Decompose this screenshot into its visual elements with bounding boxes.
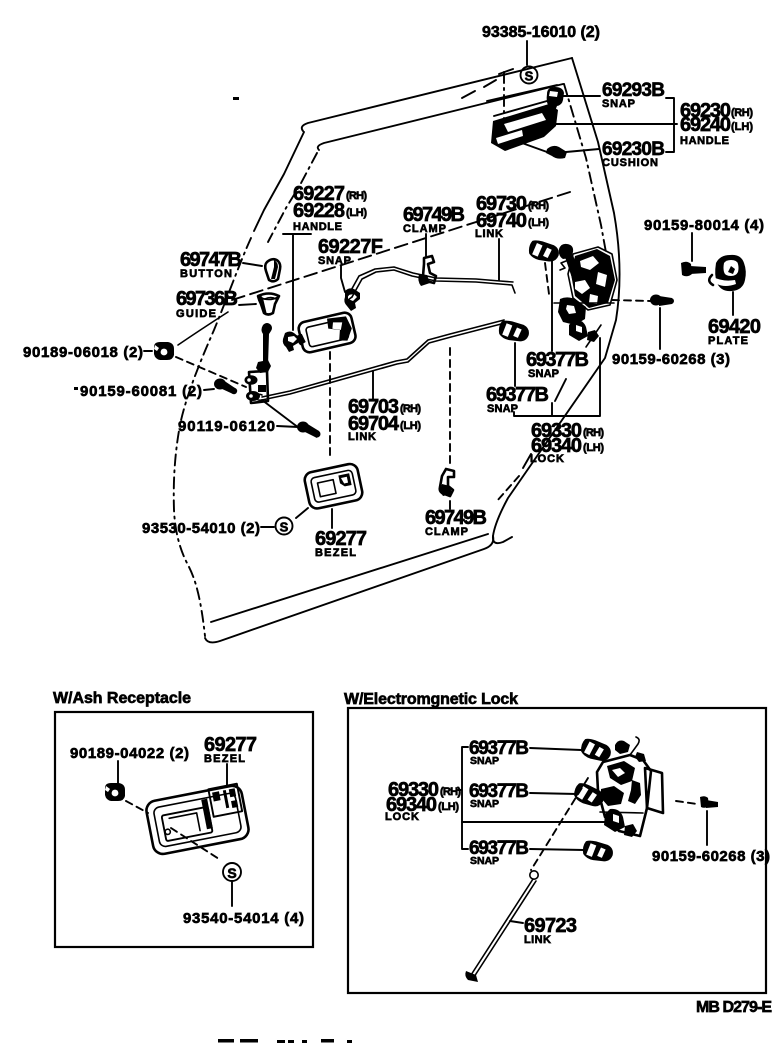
svg-text:MB D279-E: MB D279-E [696,999,772,1016]
svg-text:SNAP: SNAP [470,755,499,767]
svg-text:CUSHION: CUSHION [602,157,658,169]
svg-text:(LH): (LH) [583,442,604,454]
svg-text:LOCK: LOCK [385,811,419,823]
svg-text:HANDLE: HANDLE [293,221,342,233]
svg-text:(RH): (RH) [583,427,604,439]
svg-text:(LH): (LH) [438,801,459,813]
svg-text:LOCK: LOCK [530,453,564,465]
svg-text:SNAP: SNAP [470,798,499,810]
svg-text:(LH): (LH) [731,121,753,133]
svg-text:CLAMP: CLAMP [403,223,446,235]
svg-text:(LH): (LH) [528,217,549,229]
svg-text:LINK: LINK [348,431,376,443]
svg-text:69240: 69240 [680,114,731,136]
svg-text:W/Ash Receptacle: W/Ash Receptacle [53,690,191,707]
svg-text:93385-16010 (2): 93385-16010 (2) [482,24,600,41]
svg-text:W/Electromgnetic Lock: W/Electromgnetic Lock [344,691,518,708]
svg-text:(RH): (RH) [440,786,461,798]
svg-text:S: S [280,520,289,535]
svg-text:BEZEL: BEZEL [204,753,245,765]
svg-text:SNAP: SNAP [528,368,559,380]
svg-text:69736B: 69736B [176,288,238,310]
svg-text:90159-60081 (2): 90159-60081 (2) [80,383,202,400]
svg-text:S: S [227,865,236,881]
svg-text:90119-06120: 90119-06120 [178,418,275,435]
svg-text:(RH): (RH) [528,200,549,212]
svg-text:93540-54014 (4): 93540-54014 (4) [183,910,304,927]
svg-text:BEZEL: BEZEL [315,547,356,559]
svg-text:LINK: LINK [524,934,551,946]
svg-text:90189-04022 (2): 90189-04022 (2) [70,745,189,762]
svg-text:SNAP: SNAP [602,98,635,110]
svg-text:(RH): (RH) [400,403,421,415]
svg-text:PLATE: PLATE [708,335,748,347]
svg-text:(LH): (LH) [400,420,421,432]
svg-text:93530-54010 (2): 93530-54010 (2) [142,520,260,537]
svg-text:69228: 69228 [293,200,345,222]
svg-text:(LH): (LH) [346,207,367,219]
svg-text:(RH): (RH) [731,107,753,119]
svg-text:CLAMP: CLAMP [425,526,468,538]
svg-text:SNAP: SNAP [470,855,499,867]
svg-text:90189-06018 (2): 90189-06018 (2) [23,344,143,361]
svg-text:90159-60268 (3): 90159-60268 (3) [652,848,770,865]
svg-text:BUTTON: BUTTON [180,268,232,280]
svg-text:90159-60268 (3): 90159-60268 (3) [612,351,730,368]
svg-text:S: S [525,69,534,84]
svg-text:GUIDE: GUIDE [176,308,216,320]
svg-text:HANDLE: HANDLE [680,135,729,147]
svg-text:(RH): (RH) [346,190,367,202]
svg-text:SNAP: SNAP [318,255,351,267]
svg-text:90159-80014 (4): 90159-80014 (4) [644,217,764,234]
